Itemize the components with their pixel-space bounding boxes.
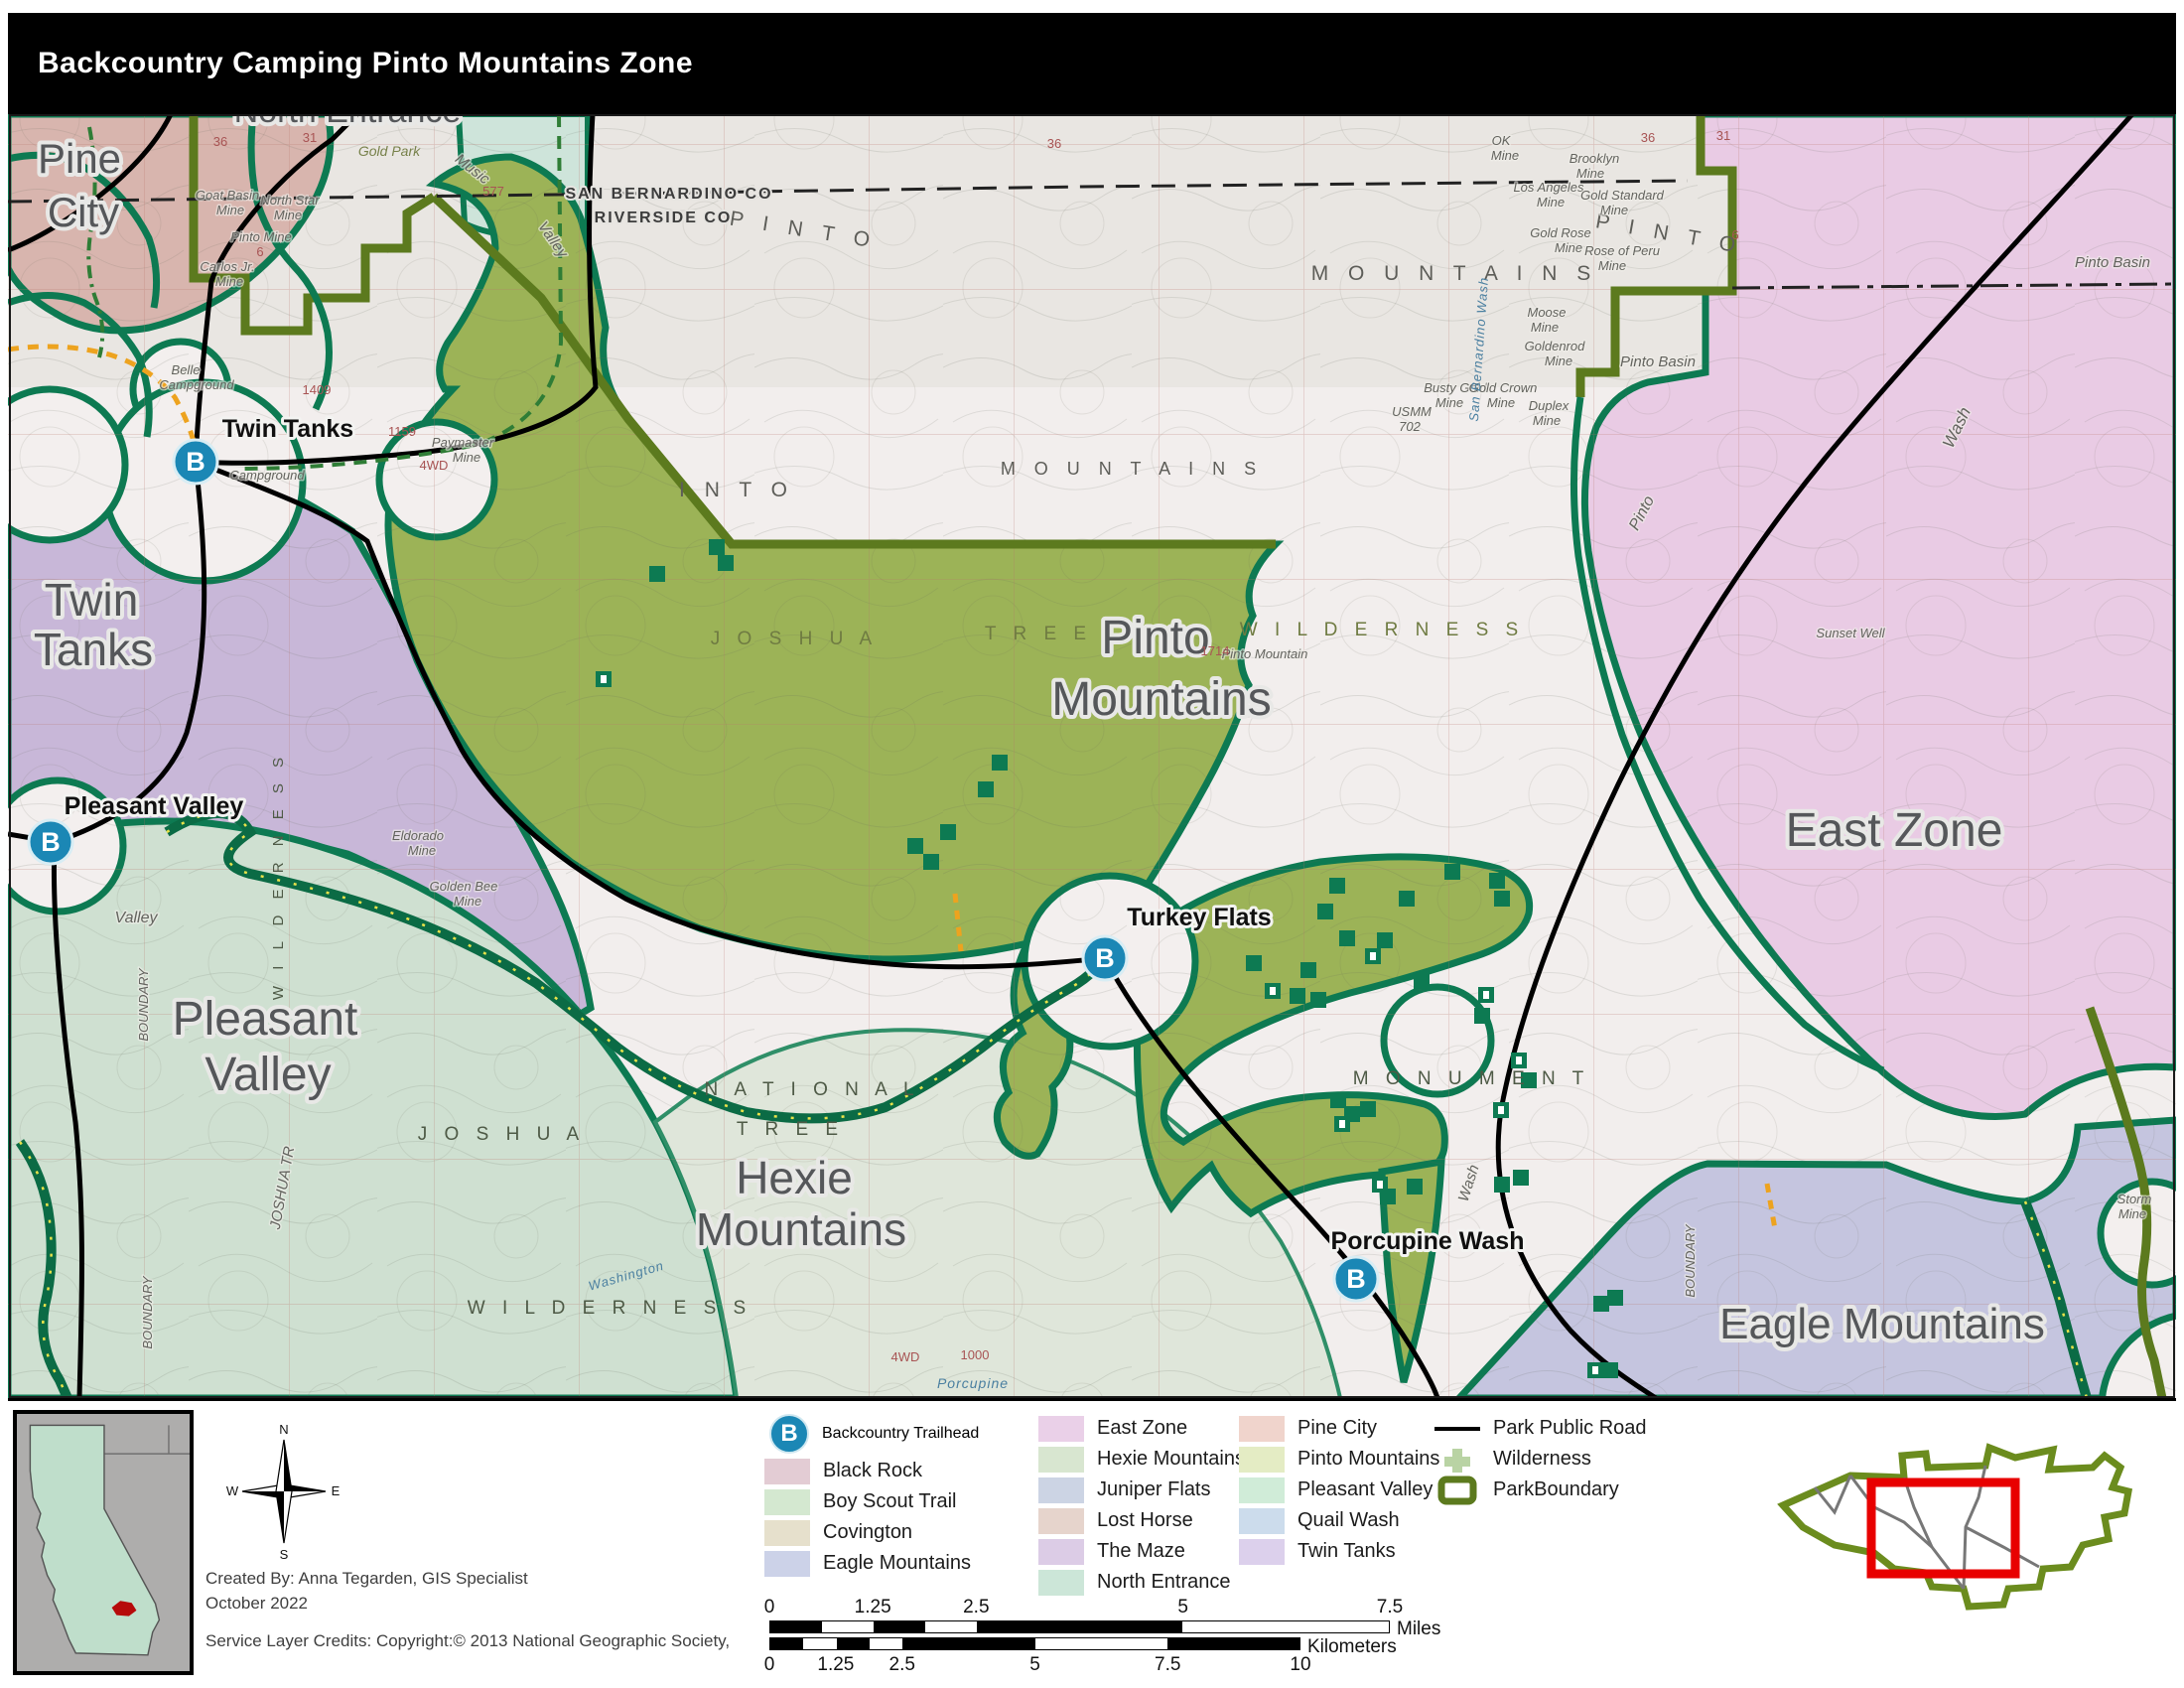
- map-label: Gold Park: [358, 143, 421, 159]
- legend-column-4: Park Public RoadWildernessParkBoundary: [1434, 1413, 1647, 1505]
- campsite-square: [709, 539, 725, 555]
- compass-w: W: [226, 1483, 239, 1498]
- map-label: W I L D E R N E S S: [1240, 620, 1524, 640]
- map-label: Mine: [1435, 395, 1463, 410]
- map-label: Pinto Basin: [1620, 353, 1696, 370]
- legend-trailhead-row: B Backcountry Trailhead: [764, 1412, 979, 1456]
- map-label: USMM: [1392, 404, 1432, 419]
- map-label: Mine: [1600, 203, 1628, 217]
- map-label: 4WD: [420, 458, 449, 473]
- scale-tick: 1.25: [855, 1597, 891, 1618]
- legend-row-black-rock: Black Rock: [764, 1456, 979, 1486]
- legend-row-juniper-flats: Juniper Flats: [1038, 1475, 1245, 1505]
- legend-row-east-zone: East Zone: [1038, 1413, 1245, 1444]
- campsite-square: [1494, 1177, 1510, 1193]
- map-label: Mine: [1545, 353, 1572, 368]
- map-label: Mine: [1491, 148, 1519, 163]
- legend-row-eagle-mountains: Eagle Mountains: [764, 1548, 979, 1579]
- scale-tick: 2.5: [889, 1654, 915, 1676]
- legend-label: Pinto Mountains: [1297, 1448, 1439, 1471]
- legend-label: Boy Scout Trail: [823, 1490, 957, 1513]
- campsite-square: [1607, 1290, 1623, 1306]
- map-label: Valley: [205, 1049, 331, 1101]
- map-label: Goldenrod: [1525, 339, 1585, 353]
- map-label: Mountains: [1051, 673, 1271, 726]
- legend-row-north-entrance: North Entrance: [1038, 1567, 1245, 1598]
- legend-label: North Entrance: [1097, 1571, 1231, 1594]
- legend-label: Black Rock: [823, 1460, 922, 1482]
- legend-row-pine-city: Pine City: [1239, 1413, 1439, 1444]
- map-label: M O U N T A I N S: [1311, 262, 1598, 285]
- legend-row-boy-scout-trail: Boy Scout Trail: [764, 1486, 979, 1517]
- campsite-square-hole: [1483, 991, 1489, 999]
- map-label: Storm: [2117, 1192, 2152, 1206]
- map-label: Porcupine: [937, 1375, 1009, 1391]
- legend-label: Lost Horse: [1097, 1509, 1193, 1532]
- credit-author: Created By: Anna Tegarden, GIS Specialis…: [205, 1567, 730, 1592]
- campsite-square: [1444, 864, 1460, 880]
- campsite-square: [1602, 1362, 1618, 1378]
- map-label: Pinto Mountain: [1222, 646, 1308, 661]
- scale-tick: 7.5: [1155, 1654, 1180, 1676]
- map-label: W I L D E R N E S S: [270, 752, 287, 1000]
- north-arrow: N S W E: [226, 1422, 341, 1561]
- map-label: Rose of Peru: [1584, 243, 1660, 258]
- campsite-square: [1246, 955, 1262, 971]
- map-label: Goat Basin: [196, 188, 259, 203]
- map-label: East Zone: [1786, 804, 2003, 857]
- map-label: Golden Bee: [430, 879, 498, 894]
- map-label: N A T I O N A L: [704, 1079, 919, 1100]
- legend-label: Hexie Mountains: [1097, 1448, 1245, 1471]
- legend-row-quail-wash: Quail Wash: [1239, 1505, 1439, 1536]
- map-label: Twin: [45, 574, 139, 626]
- campsite-square-hole: [1270, 987, 1276, 995]
- map-label: Campground: [229, 468, 305, 483]
- legend-label: Wilderness: [1493, 1448, 1591, 1471]
- campsite-square-hole: [1516, 1056, 1522, 1064]
- legend-swatch: [1239, 1508, 1285, 1534]
- legend-label: ParkBoundary: [1493, 1478, 1619, 1501]
- map-label: Twin Tanks: [222, 415, 353, 443]
- campsite-square: [1377, 932, 1393, 948]
- map-label: T R E E: [737, 1119, 844, 1140]
- map-label: Gold Standard: [1580, 188, 1665, 203]
- map-label: 4WD: [891, 1349, 920, 1364]
- map-label: Mine: [453, 450, 480, 465]
- legend-swatch: [1239, 1477, 1285, 1503]
- legend-swatch: [764, 1489, 810, 1515]
- map-title: Backcountry Camping Pinto Mountains Zone: [38, 47, 693, 80]
- map-label: Tanks: [34, 624, 153, 675]
- legend-label: East Zone: [1097, 1417, 1187, 1440]
- legend-label: Juniper Flats: [1097, 1478, 1211, 1501]
- legend-swatch: [1239, 1416, 1285, 1442]
- park-overview-inset: [1755, 1428, 2148, 1626]
- campsite-square: [1414, 973, 1430, 989]
- campsite-square: [923, 854, 939, 870]
- map-label: 1159: [388, 424, 416, 439]
- map-label: Mine: [1487, 395, 1515, 410]
- map-label: J O S H U A: [711, 629, 878, 649]
- map-label: 6: [256, 244, 263, 259]
- map-label: OK: [1492, 133, 1512, 148]
- map-label: BOUNDARY: [1683, 1223, 1698, 1298]
- legend-swatch: [1038, 1570, 1084, 1596]
- map-label: Mine: [1576, 166, 1604, 181]
- map-label: City: [48, 189, 119, 235]
- legend-row-twin-tanks: Twin Tanks: [1239, 1536, 1439, 1567]
- map-label: I N T O: [679, 479, 794, 501]
- map-label: Los Angeles: [1513, 180, 1584, 195]
- trailhead-b-glyph: B: [1346, 1264, 1366, 1294]
- trailhead-marker-porcupine-wash: B: [1334, 1257, 1378, 1301]
- road-icon: [1434, 1427, 1480, 1431]
- map-label: Hexie: [736, 1152, 853, 1203]
- campsite-square: [1399, 891, 1415, 907]
- scale-bars: 01.252.557.5 Miles Kilometers 01.252.557…: [769, 1597, 1504, 1688]
- map-label: North Star: [260, 193, 320, 208]
- map-label: Mine: [274, 208, 302, 222]
- map-label: Eldorado: [392, 828, 444, 843]
- map-label: M O U N T A I N S: [1001, 459, 1263, 479]
- map-label: Gold Rose: [1530, 225, 1590, 240]
- campsite-square: [1290, 988, 1305, 1004]
- campsite-square: [1330, 1092, 1346, 1108]
- campsite-square: [1407, 1179, 1423, 1195]
- kilometers-unit: Kilometers: [1307, 1636, 1397, 1658]
- legend-swatch: [1038, 1477, 1084, 1503]
- map-label: SAN BERNARDINO CO: [565, 186, 772, 203]
- wilderness-icon: [1434, 1445, 1480, 1475]
- legend-swatch: [764, 1459, 810, 1484]
- credits-block: Created By: Anna Tegarden, GIS Specialis…: [205, 1567, 730, 1654]
- map-label: Duplex: [1529, 398, 1570, 413]
- legend-label: Eagle Mountains: [823, 1552, 971, 1575]
- trailhead-b-glyph: B: [41, 827, 61, 857]
- map-label: Mine: [216, 203, 244, 217]
- compass-s: S: [280, 1547, 289, 1561]
- campsite-square: [1513, 1170, 1529, 1186]
- map-label: Mine: [2118, 1206, 2146, 1221]
- map-label: 36: [213, 134, 227, 149]
- map-label: Pine: [38, 135, 121, 182]
- map-label: 31: [1716, 128, 1730, 143]
- campsite-square: [1300, 962, 1316, 978]
- map-label: 6: [1731, 227, 1738, 242]
- campsite-square: [718, 555, 734, 571]
- legend-row-lost-horse: Lost Horse: [1038, 1505, 1245, 1536]
- trailhead-legend-icon: B: [769, 1414, 809, 1454]
- map-label: Mine: [215, 274, 243, 289]
- trailhead-marker-turkey-flats: B: [1083, 936, 1127, 980]
- trailhead-b-glyph: B: [186, 447, 205, 477]
- scale-tick: 5: [1177, 1597, 1188, 1618]
- map-label: BOUNDARY: [140, 1275, 155, 1349]
- legend-swatch: [1239, 1447, 1285, 1473]
- map-label: 1000: [961, 1347, 990, 1362]
- credit-service-layer: Service Layer Credits: Copyright:© 2013 …: [205, 1629, 730, 1654]
- map-document: { "title": "Backcountry Camping Pinto Mo…: [0, 0, 2184, 1688]
- map-label: Porcupine Wash: [1331, 1227, 1525, 1255]
- campsite-square: [1317, 904, 1333, 919]
- compass-e: E: [332, 1483, 341, 1498]
- map-label: Carlos Jr.: [200, 259, 254, 274]
- map-label: Mine: [1598, 258, 1626, 273]
- legend-trailhead-label: Backcountry Trailhead: [822, 1425, 979, 1443]
- legend-label: Park Public Road: [1493, 1417, 1647, 1440]
- legend-column-3: Pine CityPinto MountainsPleasant ValleyQ…: [1239, 1413, 1439, 1567]
- campsite-square: [1360, 1101, 1376, 1117]
- legend-swatch: [1038, 1416, 1084, 1442]
- map-label: Mine: [454, 894, 481, 909]
- map-label: Pinto Mine: [230, 229, 291, 244]
- map-label: Mine: [1533, 413, 1561, 428]
- legend-swatch: [1038, 1508, 1084, 1534]
- campsite-square: [978, 781, 994, 797]
- scale-tick: 5: [1029, 1654, 1040, 1676]
- legend-swatch: [1239, 1539, 1285, 1565]
- legend-swatch: [1038, 1539, 1084, 1565]
- legend-row-pleasant-valley: Pleasant Valley: [1239, 1475, 1439, 1505]
- campsite-square: [1489, 873, 1505, 889]
- map-label: Mine: [408, 843, 436, 858]
- map-label: 36: [1641, 130, 1655, 145]
- scale-tick: 7.5: [1377, 1597, 1403, 1618]
- trailhead-b-glyph: B: [1095, 943, 1115, 973]
- campsite-square-hole: [1370, 952, 1376, 960]
- map-label: BOUNDARY: [136, 967, 151, 1042]
- boundary-icon: [1434, 1475, 1480, 1506]
- legend-label: Pine City: [1297, 1417, 1377, 1440]
- campsite-square: [1593, 1296, 1609, 1312]
- map-label: J O S H U A: [418, 1124, 585, 1145]
- legend-swatch: [1038, 1447, 1084, 1473]
- map-label: W I L D E R N E S S: [468, 1298, 751, 1319]
- map-label: Mine: [1537, 195, 1565, 210]
- map-label: Mine: [1555, 240, 1582, 255]
- map-label: T R E E: [985, 624, 1092, 644]
- miles-unit: Miles: [1397, 1618, 1440, 1640]
- legend-swatch: [764, 1520, 810, 1546]
- map-label: Moose: [1527, 305, 1566, 320]
- campsite-square: [1474, 1008, 1490, 1024]
- map-label: 577: [482, 184, 504, 199]
- map-label: RIVERSIDE CO: [595, 210, 733, 226]
- map-label: Pleasant Valley: [65, 792, 244, 820]
- legend-label: The Maze: [1097, 1540, 1185, 1563]
- legend-row-hexie-mountains: Hexie Mountains: [1038, 1444, 1245, 1475]
- campsite-square-hole: [1498, 1106, 1504, 1114]
- campsite-square-hole: [1377, 1181, 1383, 1189]
- map-label: 702: [1399, 419, 1421, 434]
- scale-tick: 10: [1290, 1654, 1310, 1676]
- legend-row-covington: Covington: [764, 1517, 979, 1548]
- map-label: Pinto Basin: [2075, 254, 2150, 271]
- legend-row-road: Park Public Road: [1434, 1413, 1647, 1444]
- map-label: Pinto: [1101, 612, 1209, 664]
- legend-label: Covington: [823, 1521, 912, 1544]
- legend-row-boundary: ParkBoundary: [1434, 1475, 1647, 1505]
- map-label: 36: [1047, 136, 1061, 151]
- legend-row-wilderness: Wilderness: [1434, 1444, 1647, 1475]
- map-label: Turkey Flats: [1127, 904, 1271, 931]
- map-label: 31: [303, 130, 317, 145]
- map-label: 1409: [303, 382, 332, 397]
- scale-tick: 0: [764, 1654, 775, 1676]
- park-outline: [1783, 1448, 2128, 1607]
- map-label: Pleasant: [173, 993, 358, 1046]
- trailhead-marker-pleasant-valley: B: [29, 820, 72, 864]
- campsite-square: [649, 566, 665, 582]
- legend-row-the-maze: The Maze: [1038, 1536, 1245, 1567]
- map-label: Mine: [1531, 320, 1559, 335]
- map-label: Eagle Mountains: [1719, 1300, 2045, 1348]
- campsite-square: [907, 838, 923, 854]
- scale-tick: 2.5: [963, 1597, 989, 1618]
- legend-row-pinto-mountains: Pinto Mountains: [1239, 1444, 1439, 1475]
- map-label: Paymaster: [432, 435, 494, 450]
- compass-n: N: [279, 1422, 288, 1437]
- legend-label: Twin Tanks: [1297, 1540, 1396, 1563]
- campsite-square: [1339, 930, 1355, 946]
- township-grid: [8, 114, 2176, 1398]
- map-label: Brooklyn: [1570, 151, 1620, 166]
- campsite-square: [940, 824, 956, 840]
- map-label: 1714: [1201, 643, 1230, 658]
- trailhead-marker-twin-tanks: B: [174, 440, 217, 484]
- campsite-square-hole: [1592, 1366, 1598, 1374]
- legend-column-1: B Backcountry Trailhead Black RockBoy Sc…: [764, 1412, 979, 1579]
- map-label: Belle: [172, 362, 201, 377]
- campsite-square: [1380, 1189, 1396, 1204]
- scale-tick: 1.25: [817, 1654, 854, 1676]
- legend-swatch: [764, 1551, 810, 1577]
- legend-label: Quail Wash: [1297, 1509, 1400, 1532]
- campsite-square: [1329, 878, 1345, 894]
- scale-tick: 0: [764, 1597, 775, 1618]
- legend-column-2: East ZoneHexie MountainsJuniper FlatsLos…: [1038, 1413, 1245, 1598]
- map-label: Valley: [115, 910, 159, 926]
- map-label: M O N U M E N T: [1353, 1068, 1589, 1089]
- map-label: North Entrance: [234, 114, 462, 130]
- credit-date: October 2022: [205, 1592, 730, 1617]
- map-label: Sunset Well: [1816, 626, 1885, 640]
- campsite-square: [1310, 992, 1326, 1008]
- campsite-square-hole: [1339, 1120, 1345, 1128]
- legend-label: Pleasant Valley: [1297, 1478, 1433, 1501]
- campsite-square: [1494, 891, 1510, 907]
- map-canvas: North EntrancePineCityTwinTanksPleasantV…: [8, 114, 2176, 1401]
- california-inset: [13, 1410, 194, 1675]
- title-bar: Backcountry Camping Pinto Mountains Zone: [8, 13, 2176, 114]
- map-label: Campground: [159, 377, 234, 392]
- campsite-square: [992, 755, 1008, 771]
- campsite-square-hole: [601, 675, 607, 683]
- map-label: Mountains: [696, 1203, 906, 1255]
